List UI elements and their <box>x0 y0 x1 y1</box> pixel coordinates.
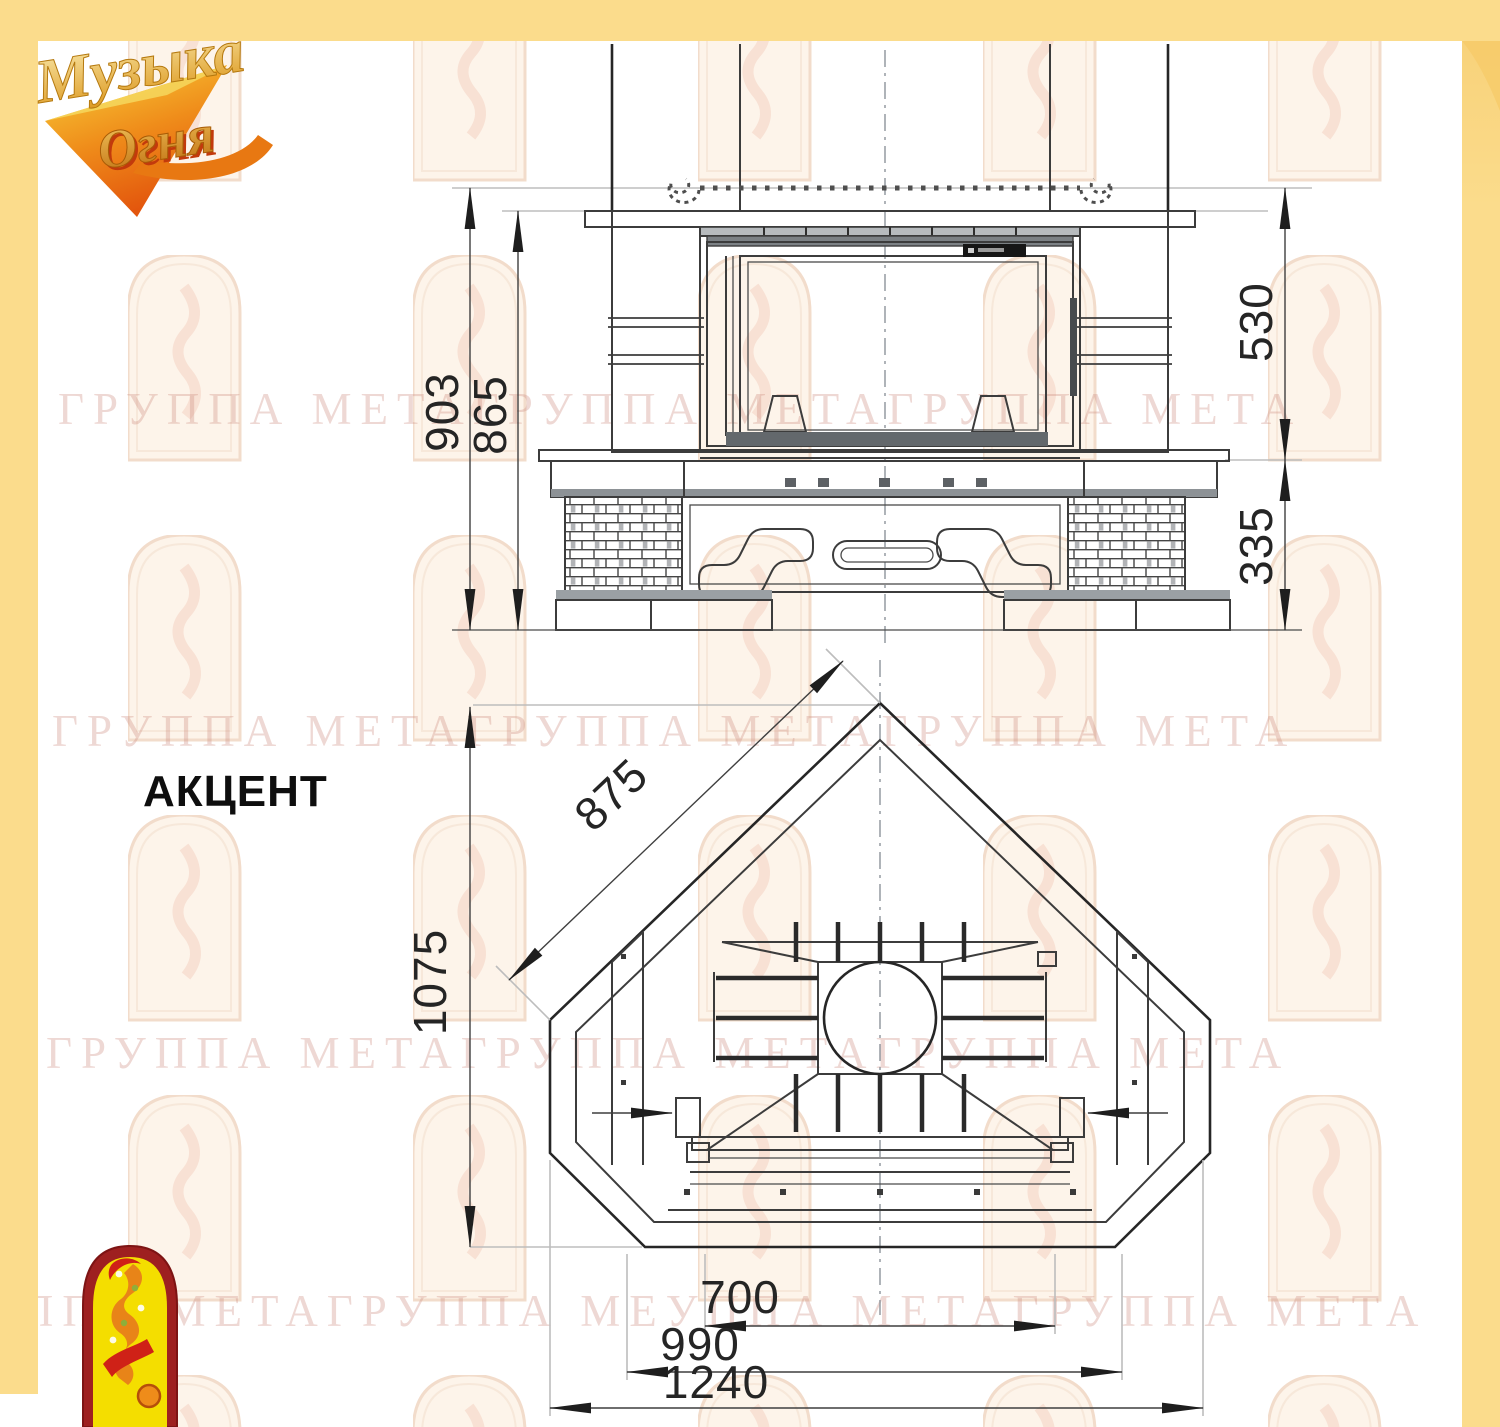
dim-865: 865 <box>464 375 516 455</box>
dim-335: 335 <box>1230 506 1282 586</box>
frame-left <box>0 41 38 1394</box>
dim-1075: 1075 <box>404 929 456 1035</box>
dim-530: 530 <box>1230 282 1282 362</box>
brick-pier-left <box>565 497 682 592</box>
dim-1240: 1240 <box>663 1356 769 1408</box>
company-emblem-icon <box>83 1246 177 1427</box>
fireplace-drawing: ГРУППА МЕТАГРУППА МЕТАГРУППА МЕТА ГРУППА… <box>0 0 1500 1427</box>
dim-700: 700 <box>700 1271 780 1323</box>
model-name: АКЦЕНТ <box>143 767 328 816</box>
door-handle <box>1070 298 1077 396</box>
brick-pier-right <box>1068 497 1185 592</box>
dim-903: 903 <box>416 372 468 452</box>
frame-right <box>1462 41 1500 1427</box>
watermark-row: ГРУППА МЕТАГРУППА МЕТАГРУППА МЕТА <box>46 1028 1290 1078</box>
watermark-row: ГРУППА МЕТАГРУППА МЕТАГРУППА МЕТА <box>58 384 1302 434</box>
door-bottom-bar <box>726 432 1048 446</box>
watermark-row: ГРУППА МЕТАГРУППА МЕТАГРУППА МЕТА <box>52 706 1296 756</box>
fireplace-spec-sheet: ГРУППА МЕТАГРУППА МЕТАГРУППА МЕТА ГРУППА… <box>0 0 1500 1427</box>
